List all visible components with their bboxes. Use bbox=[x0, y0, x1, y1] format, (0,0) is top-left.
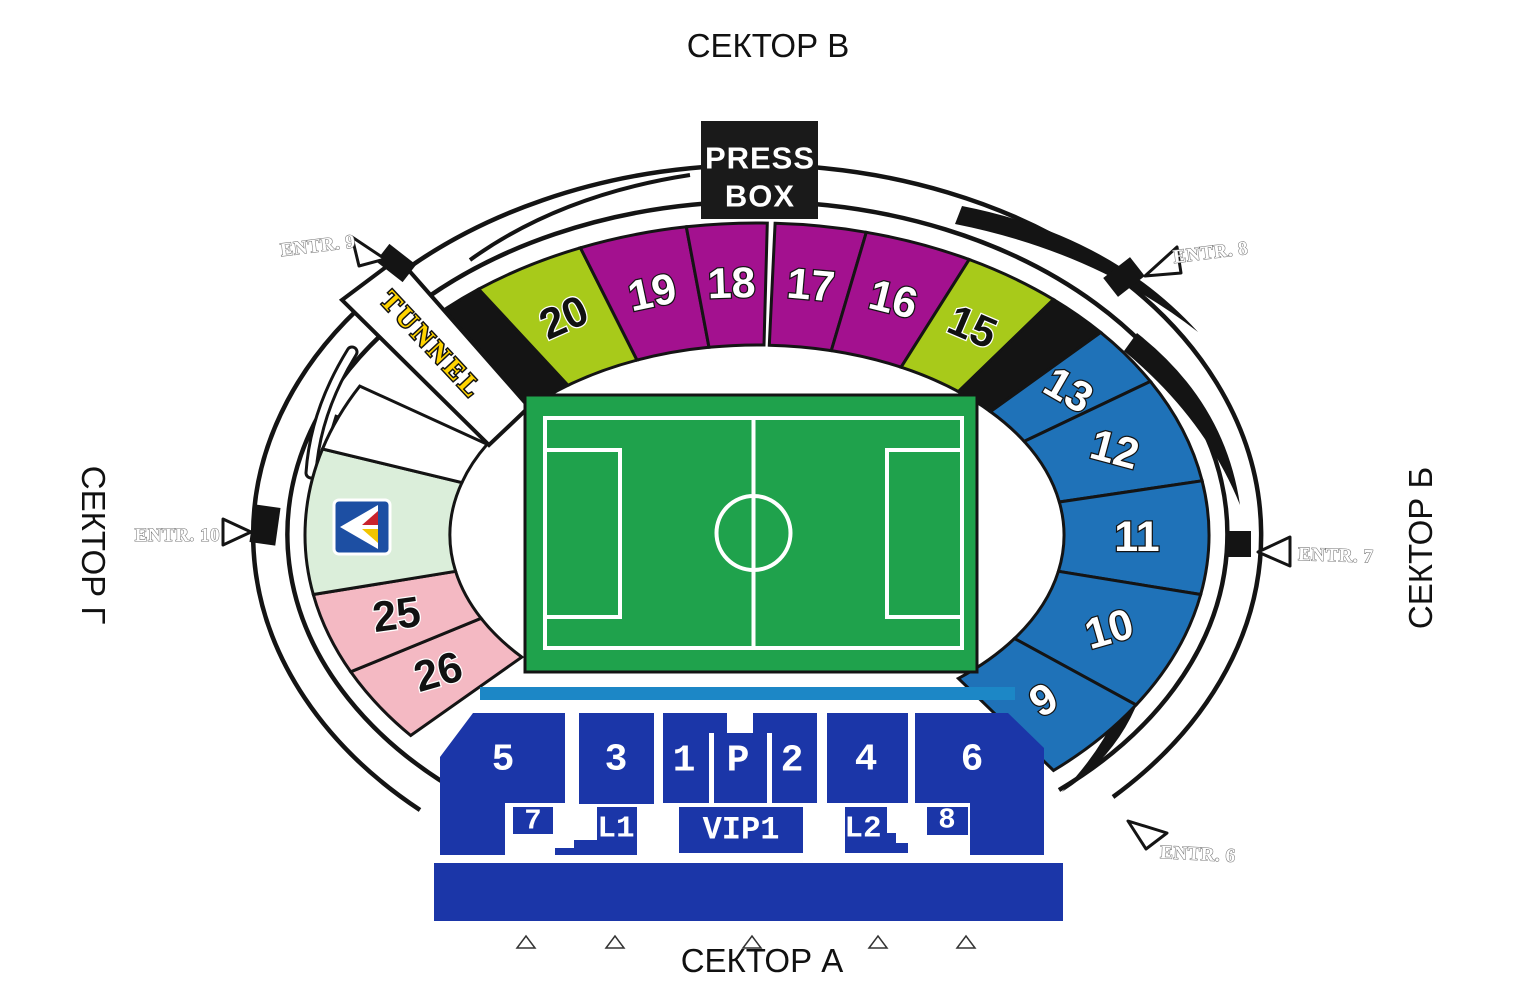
section-4-label: 4 bbox=[855, 739, 878, 782]
bowl-section-label-11: 11 bbox=[1114, 513, 1159, 561]
pitchside-strip bbox=[480, 687, 1015, 700]
section-1-label: 1 bbox=[673, 740, 696, 783]
entrance-10-label: ENTR. 10 bbox=[135, 525, 220, 546]
section-vip1-label: VIP1 bbox=[703, 812, 780, 849]
entrance-10-arrow-icon bbox=[223, 519, 251, 545]
gate-triangle bbox=[869, 936, 887, 948]
bowl-section-label-17: 17 bbox=[785, 260, 837, 312]
entrance-7-label: ENTR. 7 bbox=[1298, 544, 1374, 568]
sector-title-right: СЕКТОР Б bbox=[1402, 467, 1439, 629]
field-turf bbox=[525, 395, 977, 672]
section-2-label: 2 bbox=[781, 740, 804, 783]
bowl-section-label-18: 18 bbox=[707, 259, 756, 309]
entrance-10-gate-icon bbox=[249, 504, 280, 545]
entrance-6-label: ENTR. 6 bbox=[1160, 842, 1236, 867]
section-3-label: 3 bbox=[605, 739, 628, 782]
entrance-8-label: ENTR. 8 bbox=[1172, 238, 1249, 268]
gate-triangle bbox=[606, 936, 624, 948]
sector-title-left: СЕКТОР Г bbox=[75, 466, 112, 625]
stadium-seating-map: 2625201918171615131211109 TUNNEL PRESS B… bbox=[0, 0, 1536, 991]
section-8-label: 8 bbox=[938, 804, 955, 837]
entrance-9-label: ENTR. 9 bbox=[279, 231, 356, 261]
entrance-7-gate-icon bbox=[1227, 531, 1251, 557]
press-box-line2: BOX bbox=[725, 179, 795, 214]
gate-triangle bbox=[517, 936, 535, 948]
front-walkway bbox=[434, 863, 1063, 921]
bowl-section-label-19: 19 bbox=[624, 264, 681, 321]
sector-title-top: СЕКТОР В bbox=[687, 27, 850, 64]
press-box-line1: PRESS bbox=[705, 141, 815, 176]
section-5-label: 5 bbox=[492, 739, 515, 782]
section-p-label: P bbox=[727, 740, 750, 783]
sector-title-bottom: СЕКТОР А bbox=[681, 942, 844, 979]
section-6-label: 6 bbox=[961, 739, 984, 782]
separator-p-2 bbox=[767, 733, 772, 803]
club-logo bbox=[334, 500, 390, 554]
football-field bbox=[525, 395, 977, 672]
section-l2-label: L2 bbox=[844, 812, 881, 847]
bowl-section-label-25: 25 bbox=[370, 588, 424, 642]
section-7-label: 7 bbox=[524, 805, 541, 838]
separator-1-p bbox=[709, 733, 714, 803]
entrance-9-arrow-icon bbox=[352, 237, 385, 266]
gate-triangle bbox=[957, 936, 975, 948]
press-box: PRESS BOX bbox=[701, 121, 818, 219]
section-l1-label: L1 bbox=[597, 812, 634, 847]
